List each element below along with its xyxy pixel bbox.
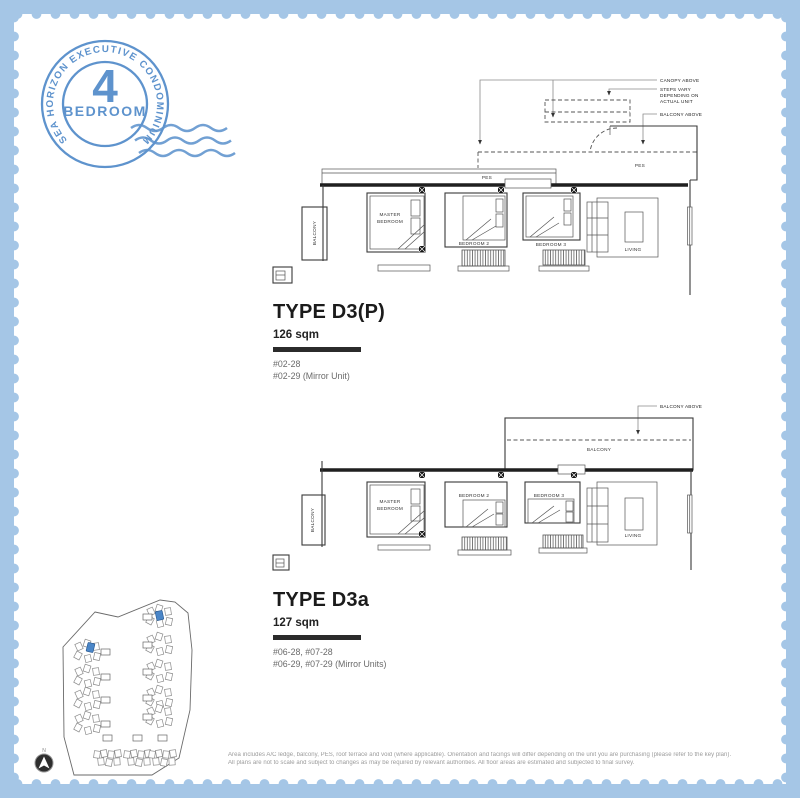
master-bedroom: MASTER BEDROOM [367,482,425,537]
plan1-title-block: TYPE D3(P) 126 sqm #02-28 #02-29 (Mirror… [273,301,385,382]
wardrobe [543,535,583,548]
label-balcony: BALCONY [310,507,315,532]
label-balcony: BALCONY [312,220,317,245]
brochure-page: { "stamp": { "arc_text": "SEA HORIZON EX… [0,0,800,798]
label-bedroom3: BEDROOM 3 [534,493,565,498]
sofa [587,488,608,542]
plan1-unit-line2: #02-29 (Mirror Unit) [273,371,385,383]
label-bedroom3: BEDROOM 3 [536,242,567,247]
disclaimer-line1: Area includes A/C ledge, balcony, PES, r… [228,752,788,758]
annotation-steps-line1: STEPS VARY [660,87,692,92]
building-clusters [74,604,177,766]
label-master-line2: BEDROOM [377,506,403,511]
door-swing-arc [590,128,617,152]
plan1-unit-line1: #02-28 [273,359,385,371]
divider-bar [273,635,361,640]
disclaimer-line2: All plans are not to scale and subject t… [228,760,788,766]
sofa [587,202,608,252]
living-room: LIVING [587,198,658,257]
plan2-title: TYPE D3a [273,589,386,611]
four-bedroom-stamp-logo: SEA HORIZON EXECUTIVE CONDOMINIUM 4 BEDR… [28,28,238,188]
label-living: LIVING [625,533,642,538]
label-master-line1: MASTER [379,212,400,217]
living-room: LIVING [587,482,657,545]
balcony-strip: BALCONY [505,418,693,470]
plan2-area: 127 sqm [273,617,386,629]
annotation-balcony-above: BALCONY ABOVE [660,112,702,117]
ac-ledge [273,555,289,570]
pes-right-room: PES [610,126,697,180]
coffee-table [625,498,643,530]
bedroom-3: BEDROOM 3 [525,482,587,553]
planter-ledge [378,265,430,271]
label-pes: PES [635,163,645,168]
label-bedroom2: BEDROOM 2 [459,493,490,498]
annotation-balcony-above: BALCONY ABOVE [660,404,702,409]
coffee-table [625,212,643,242]
plan2-unit-line1: #06-28, #07-28 [273,647,386,659]
north-compass-icon: N [35,748,53,772]
divider-bar [273,347,361,352]
annotation-canopy-above: CANOPY ABOVE [660,78,699,83]
master-bedroom: MASTER BEDROOM [367,193,425,252]
plan1-area: 126 sqm [273,329,385,341]
plan2-unit-line2: #06-29, #07-29 (Mirror Units) [273,659,386,671]
label-balcony-strip: BALCONY [587,447,612,452]
plan1-title: TYPE D3(P) [273,301,385,323]
entrance-step [505,179,551,188]
annotation-steps-line2: DEPENDING ON [660,93,699,98]
annotation-steps-line3: ACTUAL UNIT [660,99,693,104]
bedroom-3: BEDROOM 3 [523,193,589,271]
ac-ledge [273,267,292,283]
label-master-line1: MASTER [379,499,400,504]
wardrobe [543,250,585,265]
wardrobe [462,537,507,550]
site-key-plan: N [25,595,210,795]
floor-plan-type-d3a: BALCONY ABOVE BALCONY BALCONY MASTER BED… [258,395,728,585]
highlighted-unit [155,610,164,620]
label-pes: PES [482,175,492,180]
bedroom-2: BEDROOM 2 [445,193,509,271]
planter-ledge [378,545,430,550]
floor-plan-type-d3p: CANOPY ABOVE STEPS VARY DEPENDING ON ACT… [258,75,728,305]
label-master-line2: BEDROOM [377,219,403,224]
plan2-title-block: TYPE D3a 127 sqm #06-28, #07-28 #06-29, … [273,589,386,670]
site-boundary [63,600,192,775]
label-bedroom2: BEDROOM 2 [459,241,490,246]
bedroom-2: BEDROOM 2 [445,482,511,555]
north-label: N [42,748,46,754]
label-living: LIVING [625,247,642,252]
stamp-bedroom-label: BEDROOM [63,103,147,119]
wardrobe [462,250,505,266]
